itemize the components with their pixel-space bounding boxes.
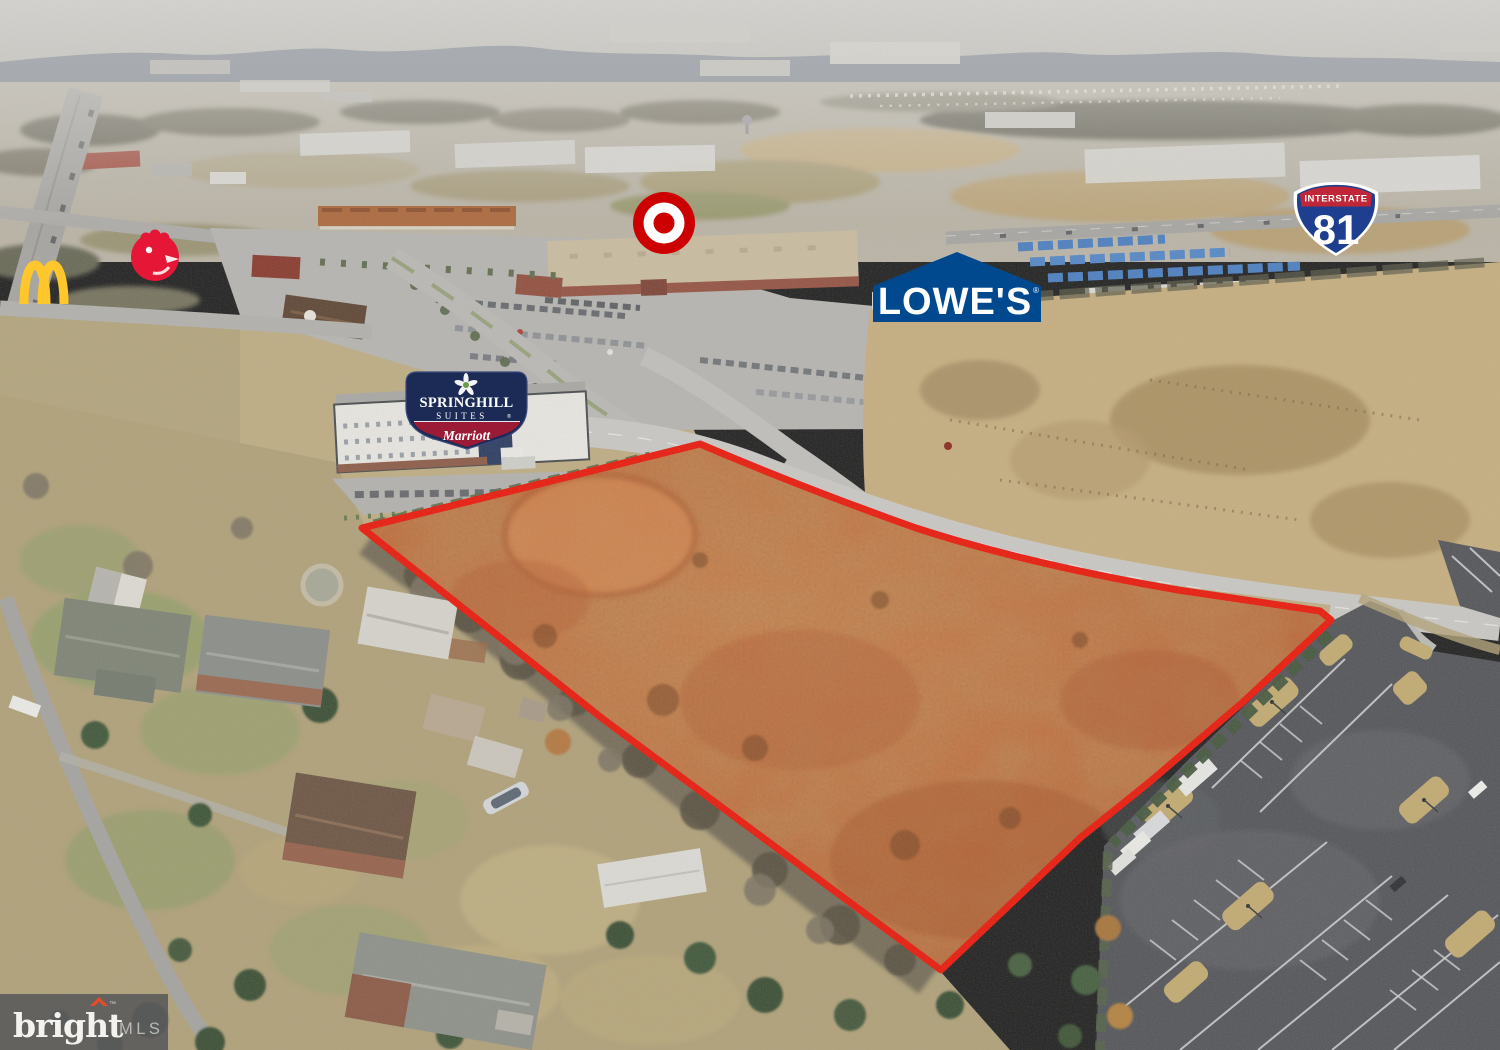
interstate-number: 81 (1313, 206, 1360, 253)
watermark-trademark: ™ (109, 1001, 116, 1008)
target-logo (633, 192, 695, 254)
springhill-suites-label: SUITES (436, 411, 488, 421)
marriott-wordmark: Marriott (442, 428, 492, 443)
brightmls-watermark: bright ™ MLS (0, 994, 168, 1050)
aerial-photo: LOWE'S ® SPRINGHILL SUITES ® Marriott IN… (0, 0, 1500, 1050)
lowes-registered-mark: ® (1033, 286, 1039, 295)
springhill-wordmark: SPRINGHILL (419, 395, 513, 411)
springhill-registered-mark: ® (507, 413, 511, 420)
chickfila-eye (146, 247, 152, 253)
interstate-label: INTERSTATE (1304, 194, 1367, 205)
photo-grain (0, 0, 1500, 1050)
watermark-suffix: MLS (119, 1020, 163, 1038)
watermark-brand: bright (13, 1006, 124, 1045)
lowes-wordmark: LOWE'S (878, 281, 1032, 323)
